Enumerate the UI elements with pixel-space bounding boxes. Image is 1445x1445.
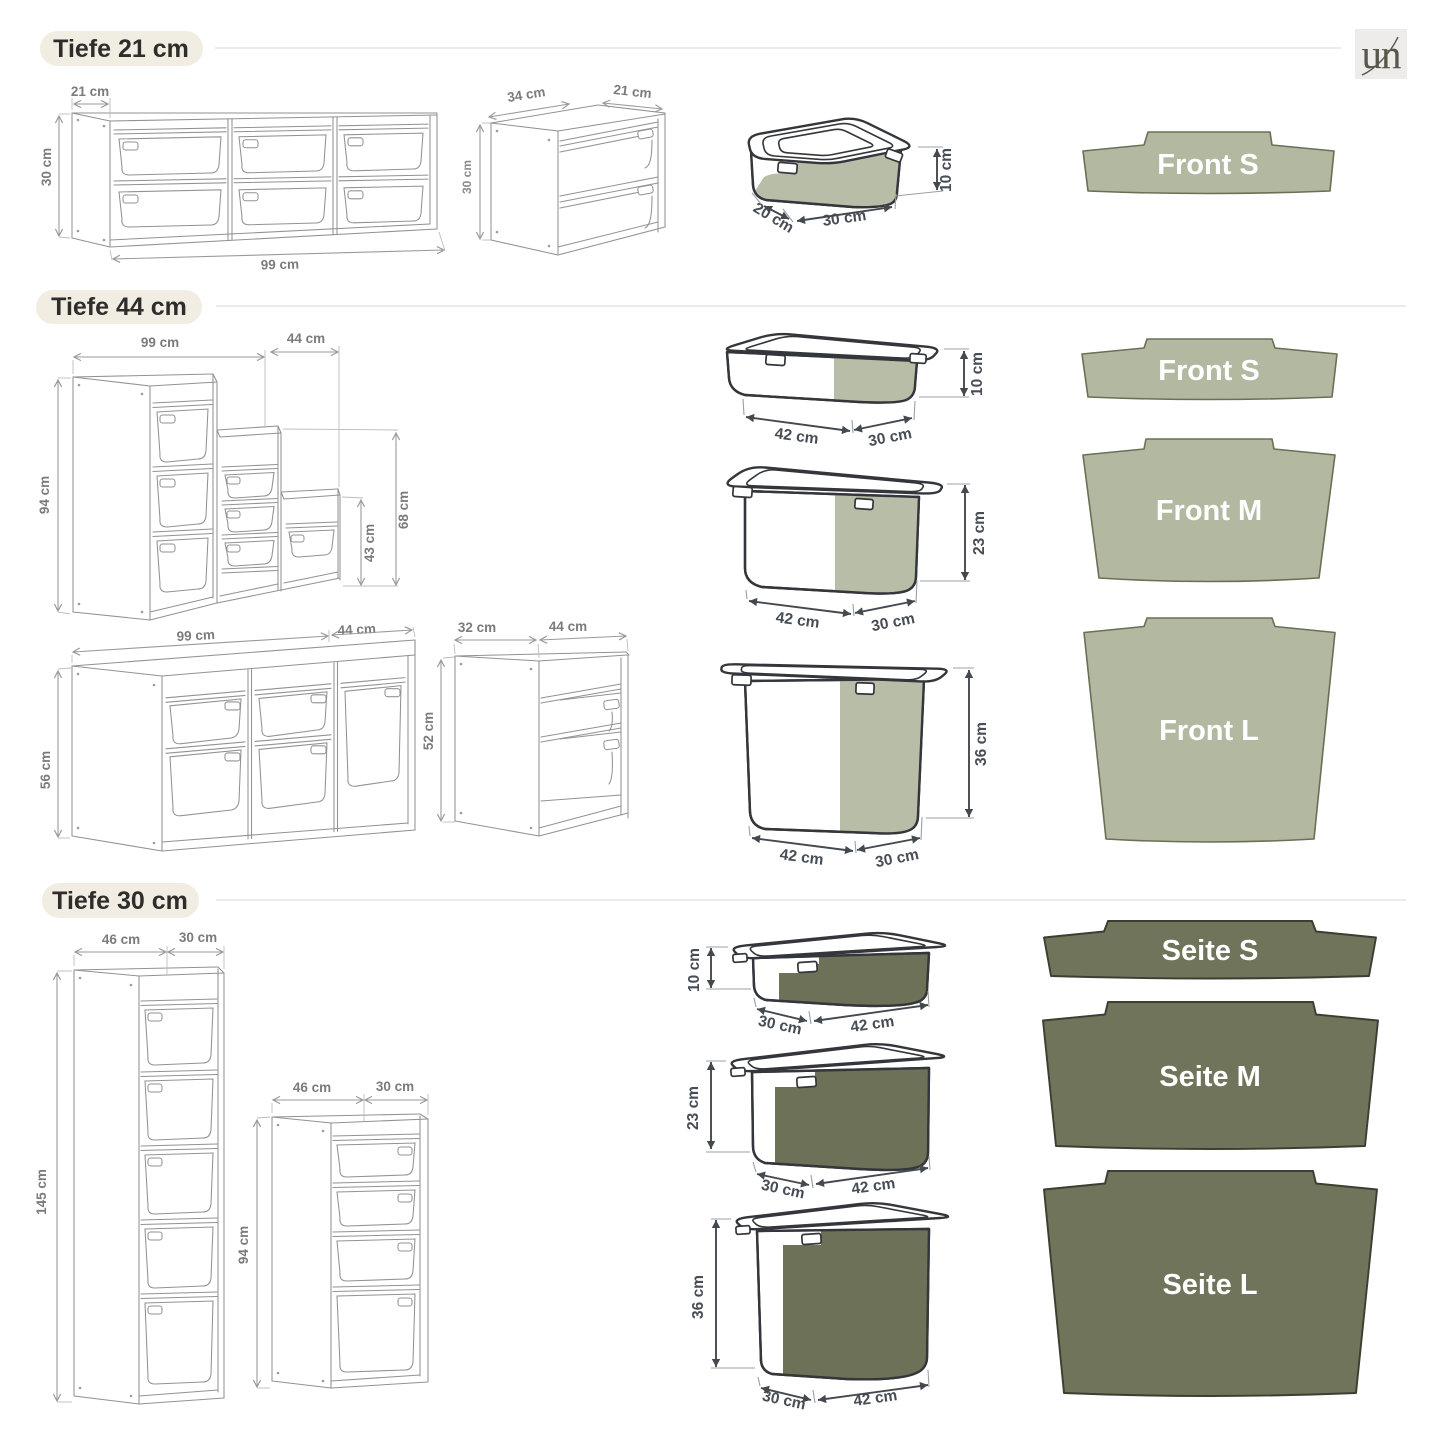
svg-text:44 cm: 44 cm (337, 621, 376, 638)
svg-text:94 cm: 94 cm (37, 476, 52, 514)
svg-text:Front S: Front S (1158, 355, 1260, 387)
svg-text:10 cm: 10 cm (969, 352, 986, 396)
svg-text:Tiefe 21 cm: Tiefe 21 cm (53, 35, 189, 63)
svg-text:36 cm: 36 cm (973, 722, 990, 766)
svg-text:52 cm: 52 cm (421, 712, 436, 750)
svg-text:99 cm: 99 cm (176, 627, 215, 644)
svg-text:99 cm: 99 cm (261, 257, 300, 273)
svg-text:44 cm: 44 cm (287, 331, 325, 346)
svg-text:44 cm: 44 cm (549, 619, 587, 634)
svg-text:30 cm: 30 cm (460, 160, 474, 194)
svg-text:46 cm: 46 cm (102, 932, 140, 947)
svg-text:23 cm: 23 cm (685, 1086, 702, 1130)
svg-text:21 cm: 21 cm (71, 84, 109, 99)
svg-text:Seite M: Seite M (1159, 1061, 1261, 1093)
svg-text:Seite S: Seite S (1162, 935, 1259, 967)
svg-text:46 cm: 46 cm (293, 1080, 331, 1095)
svg-text:43 cm: 43 cm (362, 524, 377, 562)
svg-text:Tiefe 30 cm: Tiefe 30 cm (52, 887, 188, 915)
svg-text:145 cm: 145 cm (34, 1169, 49, 1215)
svg-text:Front M: Front M (1156, 495, 1262, 527)
svg-text:Seite L: Seite L (1162, 1269, 1257, 1301)
svg-text:10 cm: 10 cm (938, 148, 955, 192)
svg-text:Front L: Front L (1159, 715, 1259, 747)
svg-text:Tiefe 44 cm: Tiefe 44 cm (51, 293, 187, 321)
svg-text:56 cm: 56 cm (38, 751, 53, 789)
svg-text:99 cm: 99 cm (141, 335, 179, 350)
svg-text:94 cm: 94 cm (236, 1226, 251, 1264)
svg-text:un: un (1362, 31, 1402, 77)
svg-text:68 cm: 68 cm (396, 491, 411, 529)
svg-text:36 cm: 36 cm (690, 1275, 707, 1319)
svg-text:10 cm: 10 cm (686, 948, 703, 992)
svg-text:23 cm: 23 cm (971, 511, 988, 555)
svg-text:30 cm: 30 cm (179, 930, 217, 945)
svg-text:30 cm: 30 cm (39, 148, 54, 186)
svg-text:Front S: Front S (1157, 149, 1259, 181)
svg-text:32 cm: 32 cm (458, 620, 496, 635)
svg-text:30 cm: 30 cm (376, 1079, 414, 1094)
